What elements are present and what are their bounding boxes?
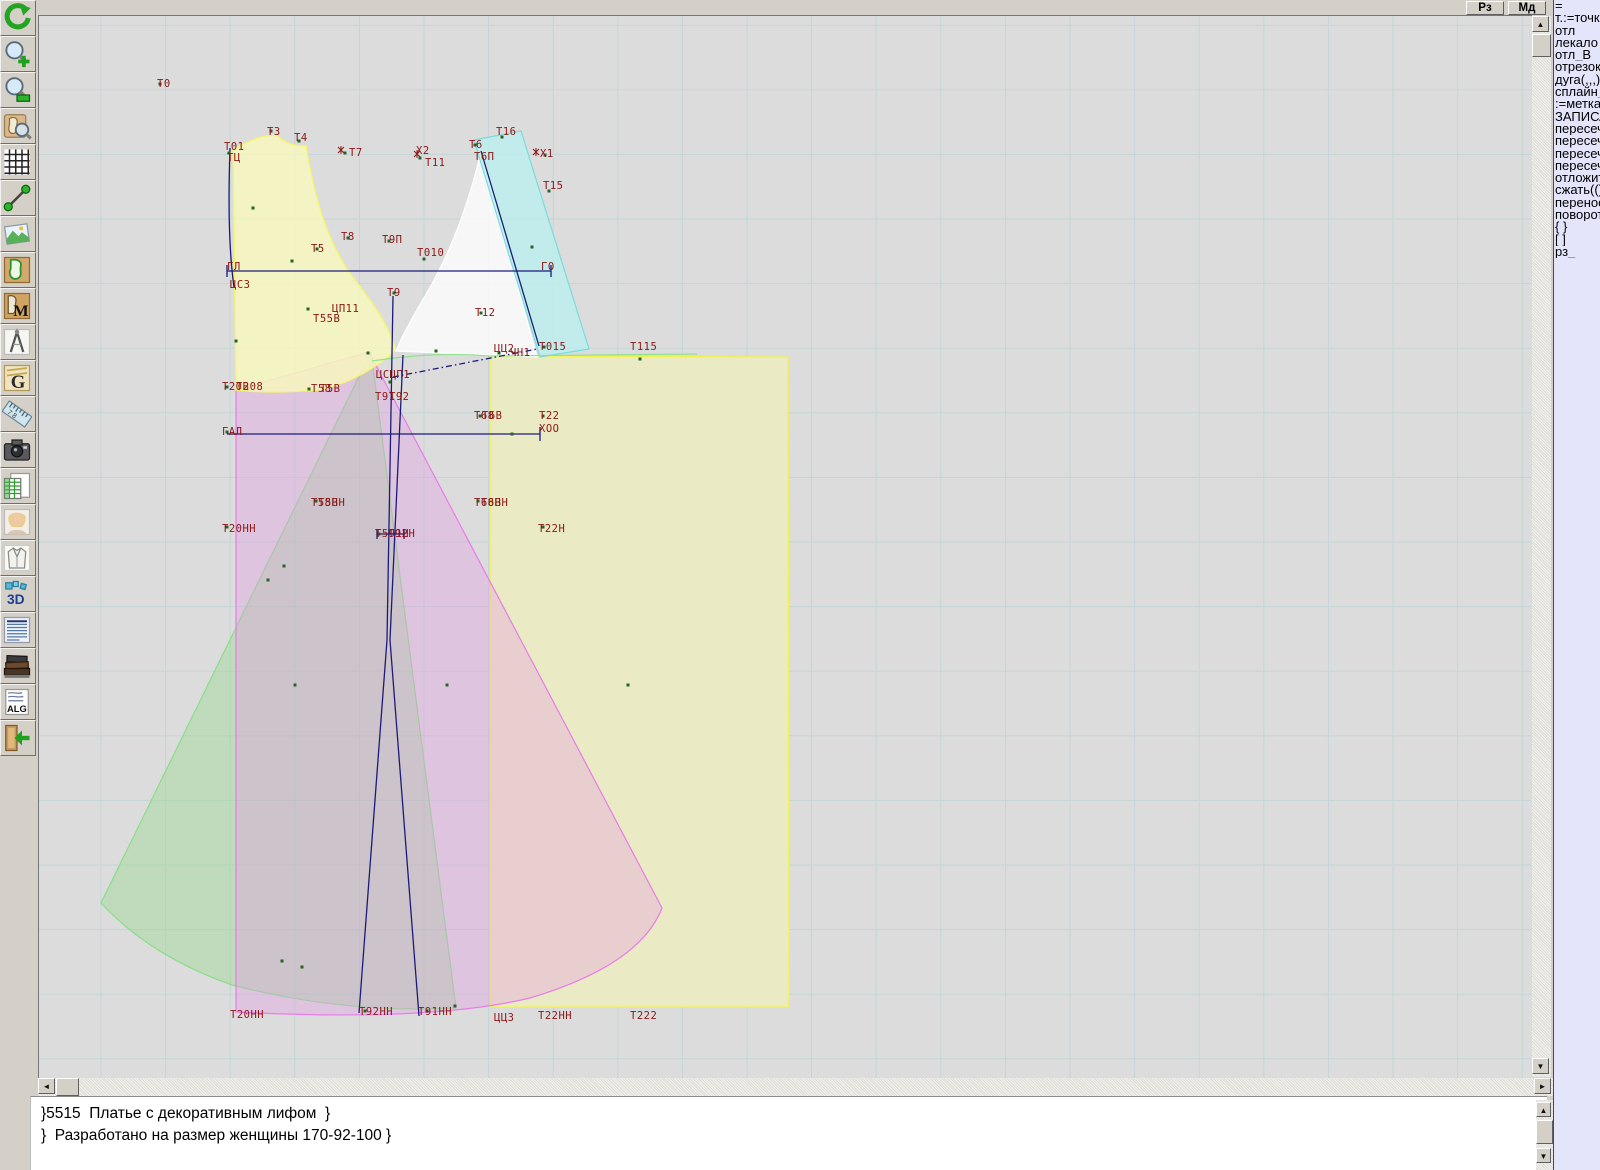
point-label: Т222	[630, 1010, 657, 1022]
command-item[interactable]: пересеч	[1554, 148, 1600, 160]
scroll-down-icon[interactable]: ▼	[1536, 1148, 1551, 1163]
point-marker	[281, 960, 284, 963]
point-label: Т91НН	[418, 1006, 452, 1018]
point-marker	[639, 358, 642, 361]
camera-icon[interactable]	[0, 432, 36, 468]
command-item[interactable]: [ ]	[1554, 234, 1600, 246]
point-marker	[301, 966, 304, 969]
status-line: }5515 Платье с декоративным лифом }	[41, 1103, 1547, 1125]
point-label: Т3	[267, 126, 281, 138]
command-item[interactable]: отрезок	[1554, 61, 1600, 73]
point-marker	[435, 350, 438, 353]
pattern-drawing[interactable]: Т0Т3Т4Т01ТЦТ7Х2Т11Т6Т16Т6ПХ1Т15Т8Т5Т9ПТ0…	[39, 16, 1532, 1078]
scroll-left-icon[interactable]: ◄	[38, 1078, 55, 1094]
point-label: Т22	[539, 410, 559, 422]
point-label: Т12	[475, 307, 495, 319]
point-label: Т6В	[482, 410, 502, 422]
measure-line-icon[interactable]	[0, 180, 36, 216]
point-label: ЦС3	[230, 279, 250, 291]
point-marker	[511, 433, 514, 436]
point-label: Т22Н	[538, 523, 565, 535]
point-marker	[446, 684, 449, 687]
point-label: Т015	[539, 341, 566, 353]
point-label: Т9	[387, 287, 401, 299]
point-label: Т55В	[313, 313, 340, 325]
point-marker	[294, 684, 297, 687]
exit-icon[interactable]	[0, 720, 36, 756]
md-button[interactable]: Мд	[1508, 1, 1546, 15]
point-label: Х2	[416, 145, 430, 157]
undo-icon[interactable]	[0, 0, 36, 36]
command-item[interactable]: отл	[1554, 25, 1600, 37]
command-item[interactable]: :=метка	[1554, 98, 1600, 110]
pattern-cad-window: MG7 83DALG Рз Мд Т0Т3Т4Т01ТЦТ7Х2Т11Т6Т16…	[0, 0, 1600, 1170]
point-marker	[367, 352, 370, 355]
point-label: ЧН1	[510, 347, 530, 359]
scroll-down-icon[interactable]: ▼	[1532, 1058, 1549, 1074]
point-label: ГО	[541, 261, 555, 273]
point-label: Т16	[496, 126, 516, 138]
compass-icon[interactable]	[0, 324, 36, 360]
canvas-hscrollbar[interactable]: ◄ ►	[38, 1078, 1553, 1096]
left-toolbar: MG7 83DALG	[0, 0, 39, 1170]
status-text-panel[interactable]: }5515 Платье с декоративным лифом }} Раз…	[30, 1096, 1547, 1170]
command-item[interactable]: отл_В	[1554, 49, 1600, 61]
point-marker	[235, 340, 238, 343]
point-label: ХОО	[539, 423, 559, 435]
command-item[interactable]: пересеч	[1554, 123, 1600, 135]
command-item[interactable]: дуга(,,,)	[1554, 74, 1600, 86]
portrait-icon[interactable]	[0, 504, 36, 540]
svg-text:ALG: ALG	[7, 704, 27, 714]
status-vscrollbar[interactable]: ▲ ▼	[1536, 1100, 1553, 1170]
g-letter-icon[interactable]: G	[0, 360, 36, 396]
garment-icon[interactable]	[0, 540, 36, 576]
grid-icon[interactable]	[0, 144, 36, 180]
text-doc-icon[interactable]	[0, 612, 36, 648]
x-marker	[338, 146, 344, 154]
pattern-piece-icon[interactable]	[0, 252, 36, 288]
canvas-vscrollbar[interactable]: ▲ ▼	[1532, 16, 1551, 1077]
svg-text:M: M	[13, 302, 28, 320]
point-label: Т6	[469, 139, 483, 151]
point-label: Т208	[236, 381, 263, 393]
point-label: ТЦ	[227, 152, 241, 164]
drawing-canvas[interactable]: Т0Т3Т4Т01ТЦТ7Х2Т11Т6Т16Т6ПХ1Т15Т8Т5Т9ПТ0…	[38, 15, 1532, 1078]
point-label: Т6ВН	[481, 497, 508, 509]
command-item[interactable]: { }	[1554, 221, 1600, 233]
pattern-m-icon[interactable]: M	[0, 288, 36, 324]
point-label: ГЛ	[227, 261, 241, 273]
point-label: Т92Н	[388, 528, 415, 540]
command-item[interactable]: лекало	[1554, 37, 1600, 49]
point-label: Т92	[389, 391, 409, 403]
point-label: Т11	[425, 157, 445, 169]
ruler-icon[interactable]: 7 8	[0, 396, 36, 432]
preview-piece-icon[interactable]	[0, 108, 36, 144]
command-item[interactable]: рз_	[1554, 246, 1600, 258]
point-label: Х1	[540, 148, 554, 160]
scroll-right-icon[interactable]: ►	[1534, 1078, 1551, 1094]
point-label: Т20НН	[222, 523, 256, 535]
point-label: Т9П	[382, 234, 402, 246]
point-label: Т115	[630, 341, 657, 353]
command-item[interactable]: =	[1554, 0, 1600, 12]
point-label: Т22НН	[538, 1010, 572, 1022]
command-item[interactable]: сплайн_	[1554, 86, 1600, 98]
zoom-out-icon[interactable]	[0, 72, 36, 108]
point-label: Т5ВН	[318, 497, 345, 509]
top-bar: Рз Мд	[38, 0, 1553, 16]
point-label: Т010	[417, 247, 444, 259]
command-item[interactable]: перенос	[1554, 197, 1600, 209]
table-doc-icon[interactable]	[0, 468, 36, 504]
command-item[interactable]: пересеч	[1554, 160, 1600, 172]
point-label: Т6П	[474, 151, 494, 163]
point-label: ГАЛ	[222, 426, 242, 438]
point-label: ЦСЦП1	[376, 369, 410, 381]
point-label: Т92НН	[359, 1006, 393, 1018]
point-label: Т4	[294, 132, 308, 144]
point-marker	[267, 579, 270, 582]
point-label: Т0	[157, 78, 171, 90]
command-item[interactable]: пересеч	[1554, 135, 1600, 147]
bodice-back-yellow[interactable]	[233, 135, 396, 392]
command-item[interactable]: отложит	[1554, 172, 1600, 184]
point-label: Т15	[543, 180, 563, 192]
point-label: Т5В	[320, 383, 340, 395]
point-marker	[291, 260, 294, 263]
x-marker	[533, 148, 539, 156]
point-marker	[531, 246, 534, 249]
point-marker	[454, 1005, 457, 1008]
point-marker	[307, 308, 310, 311]
alg-icon[interactable]: ALG	[0, 684, 36, 720]
command-item[interactable]: ЗАПИСА	[1554, 111, 1600, 123]
point-marker	[627, 684, 630, 687]
image-icon[interactable]	[0, 216, 36, 252]
point-label: Т8	[341, 231, 355, 243]
scroll-up-icon[interactable]: ▲	[1532, 16, 1549, 32]
command-sidebar: =т.:=точкаотллекалоотл_Вотрезокдуга(,,,)…	[1553, 0, 1600, 1170]
vscroll-thumb[interactable]	[1532, 34, 1551, 57]
point-label: Т7	[349, 147, 363, 159]
scroll-up-icon[interactable]: ▲	[1536, 1102, 1551, 1117]
command-item[interactable]: поворот	[1554, 209, 1600, 221]
command-item[interactable]: т.:=точка	[1554, 12, 1600, 24]
point-label: ЦЦ3	[494, 1012, 514, 1024]
svg-text:3D: 3D	[7, 592, 25, 607]
hscroll-thumb[interactable]	[56, 1078, 79, 1096]
three-d-icon[interactable]: 3D	[0, 576, 36, 612]
rz-button[interactable]: Рз	[1466, 1, 1504, 15]
status-line: } Разработано на размер женщины 170-92-1…	[41, 1125, 1547, 1147]
svg-text:G: G	[11, 372, 26, 393]
point-marker	[283, 565, 286, 568]
command-item[interactable]: сжать(()	[1554, 184, 1600, 196]
books-icon[interactable]	[0, 648, 36, 684]
point-label: Т5	[311, 243, 325, 255]
zoom-in-icon[interactable]	[0, 36, 36, 72]
status-vscroll-thumb[interactable]	[1536, 1120, 1553, 1144]
point-marker	[252, 207, 255, 210]
point-label: Т20НН	[230, 1009, 264, 1021]
pattern-pieces	[101, 131, 789, 1015]
